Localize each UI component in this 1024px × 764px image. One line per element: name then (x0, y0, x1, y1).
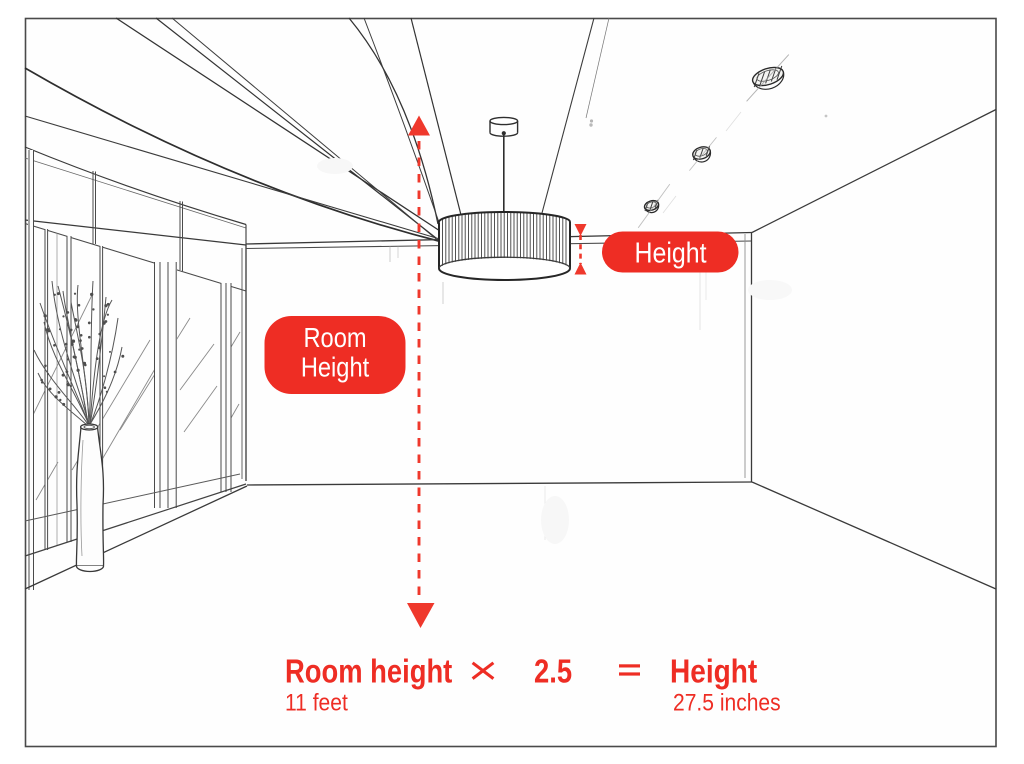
svg-text:Height: Height (634, 237, 707, 269)
svg-text:Height: Height (670, 653, 757, 690)
svg-text:2.5: 2.5 (534, 654, 572, 690)
svg-text:11 feet: 11 feet (285, 688, 348, 716)
svg-text:27.5 inches: 27.5 inches (673, 688, 781, 716)
svg-text:Height: Height (301, 353, 369, 383)
svg-text:Room: Room (303, 323, 366, 353)
svg-text:Room height: Room height (285, 654, 452, 690)
